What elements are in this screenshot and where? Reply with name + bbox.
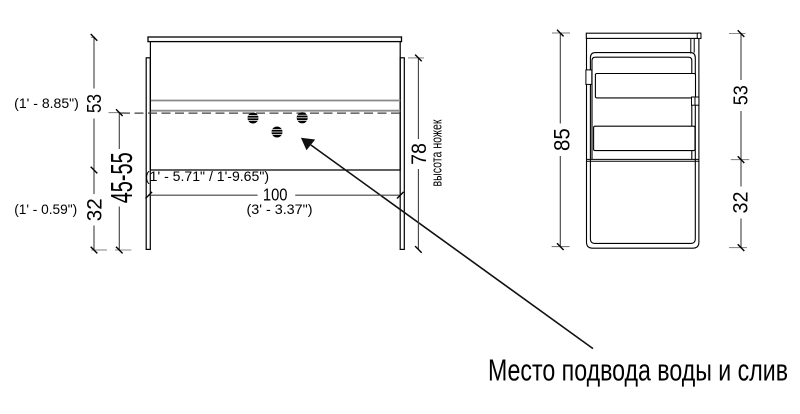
svg-text:85: 85 — [550, 128, 575, 151]
svg-text:32: 32 — [729, 192, 753, 214]
svg-text:53: 53 — [731, 85, 753, 105]
svg-text:высота ножек: высота ножек — [429, 119, 446, 186]
svg-text:45-55: 45-55 — [105, 152, 139, 203]
svg-text:78: 78 — [408, 143, 431, 165]
svg-text:32: 32 — [83, 198, 107, 221]
svg-text:(1' - 8.85"): (1' - 8.85") — [14, 95, 79, 111]
svg-text:(3' - 3.37"): (3' - 3.37") — [247, 201, 313, 217]
svg-text:(1' - 0.59"): (1' - 0.59") — [14, 201, 77, 217]
svg-text:Место подвода воды и слив: Место подвода воды и слив — [488, 353, 788, 388]
svg-text:53: 53 — [83, 94, 106, 113]
svg-text:(1' - 5.71" / 1'-9.65"): (1' - 5.71" / 1'-9.65") — [145, 168, 269, 184]
